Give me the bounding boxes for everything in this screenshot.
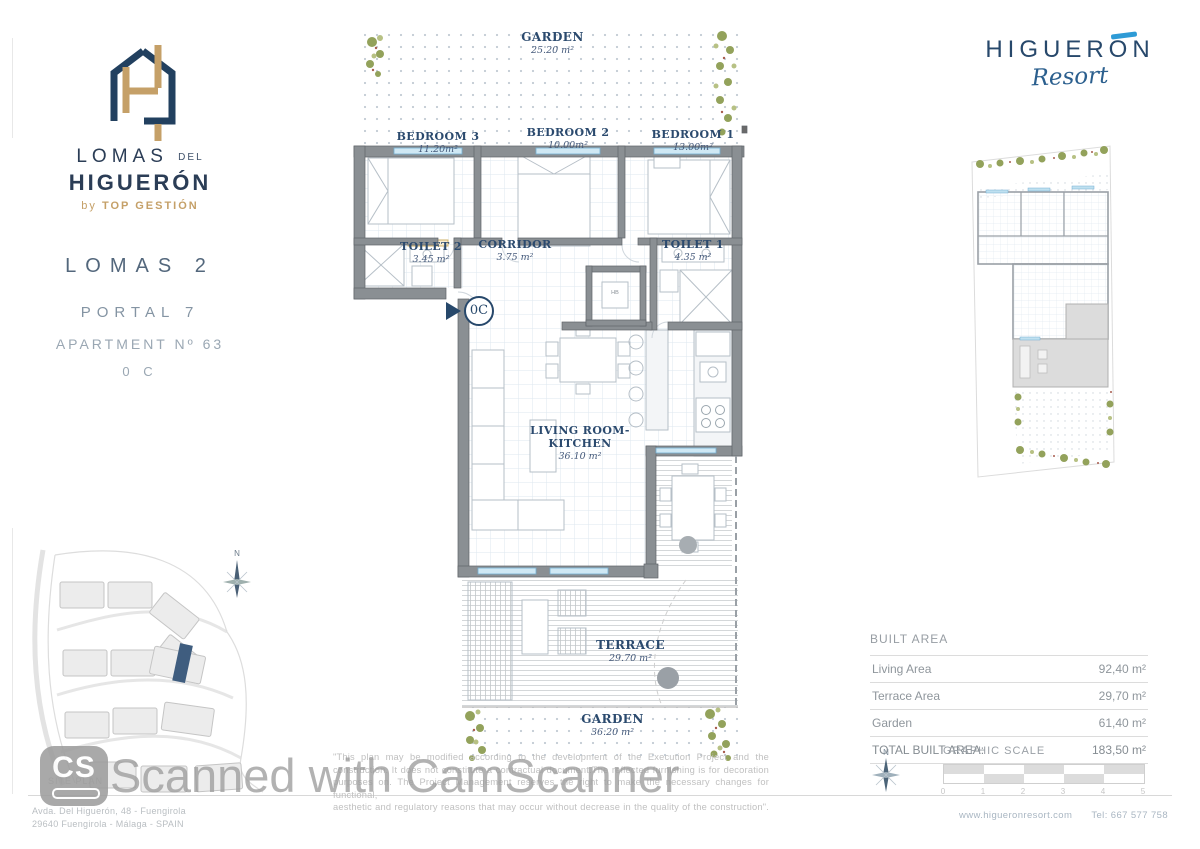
brand-line2: HIGUERÓN xyxy=(40,170,240,196)
footer-phone: Tel: 667 577 758 xyxy=(1091,810,1168,821)
mini-floorplan-drawing xyxy=(958,132,1123,487)
row-label: Living Area xyxy=(872,662,931,676)
row-label: Garden xyxy=(872,716,912,730)
footer-address: Avda. Del Higuerón, 48 - Fuengirola 2964… xyxy=(32,805,186,831)
brand-line1: LOMAS xyxy=(76,146,168,167)
camscanner-logo-bed xyxy=(52,788,100,799)
resort-script: Resort xyxy=(972,61,1169,94)
planter xyxy=(657,667,679,689)
higueron-resort-logo: HIGUERON Resort xyxy=(972,36,1168,90)
scan-artifact-line xyxy=(12,38,13,138)
planter xyxy=(679,536,697,554)
entrance-unit-code: 0C xyxy=(464,296,494,326)
north-compass-icon: N xyxy=(868,746,904,796)
row-value: 29,70 m² xyxy=(1099,689,1146,703)
camscanner-watermark: Scanned with CamScanner xyxy=(110,748,680,803)
footer-website[interactable]: www.higueronresort.com xyxy=(959,810,1072,821)
lomas-del-higueron-logo xyxy=(88,33,198,143)
camscanner-logo: CS xyxy=(40,746,108,806)
brand-byline-prefix: by xyxy=(81,200,97,212)
entrance-arrow-icon xyxy=(446,302,461,320)
apartment-number: APARTMENT Nº 63 xyxy=(30,336,250,352)
unit-info: LOMAS 2 PORTAL 7 APARTMENT Nº 63 0 C xyxy=(30,255,250,379)
table-row: Terrace Area 29,70 m² xyxy=(870,682,1148,709)
table-row: Garden 61,40 m² xyxy=(870,709,1148,736)
unit-code: 0 C xyxy=(30,364,250,379)
graphic-scale-bar xyxy=(943,764,1145,784)
resort-name: HIGUERON xyxy=(972,36,1168,64)
brand-byline: TOP GESTIÓN xyxy=(102,200,199,212)
brand-line1-small: DEL xyxy=(178,152,203,163)
row-value: 61,40 m² xyxy=(1099,716,1146,730)
camscanner-logo-text: CS xyxy=(40,746,108,790)
site-compass-icon: N xyxy=(223,549,251,598)
scan-artifact-line xyxy=(12,528,13,794)
row-label: Terrace Area xyxy=(872,689,940,703)
hb-appliance-label: HB xyxy=(603,290,627,296)
resort-name-text: HIGUERON xyxy=(985,36,1154,63)
graphic-scale-ticks: 0 1 2 3 4 5 xyxy=(943,787,1144,799)
floorplan-page: LOMAS DEL HIGUERÓN by TOP GESTIÓN LOMAS … xyxy=(0,0,1200,849)
brand-wordmark: LOMAS DEL HIGUERÓN by TOP GESTIÓN xyxy=(40,146,240,212)
table-row: Living Area 92,40 m² xyxy=(870,655,1148,682)
portal-number: PORTAL 7 xyxy=(30,304,250,321)
graphic-scale-label: GRAPHIC SCALE xyxy=(943,745,1045,757)
svg-text:N: N xyxy=(234,549,240,558)
footer-contact: www.higueronresort.com Tel: 667 577 758 xyxy=(943,810,1168,821)
project-name: LOMAS 2 xyxy=(30,255,250,278)
total-value: 183,50 m² xyxy=(1092,743,1146,757)
garden-top-area xyxy=(364,28,742,146)
svg-text:N: N xyxy=(883,748,889,757)
main-floorplan-drawing xyxy=(350,20,770,768)
built-area-title: BUILT AREA xyxy=(870,632,1148,655)
row-value: 92,40 m² xyxy=(1099,662,1146,676)
